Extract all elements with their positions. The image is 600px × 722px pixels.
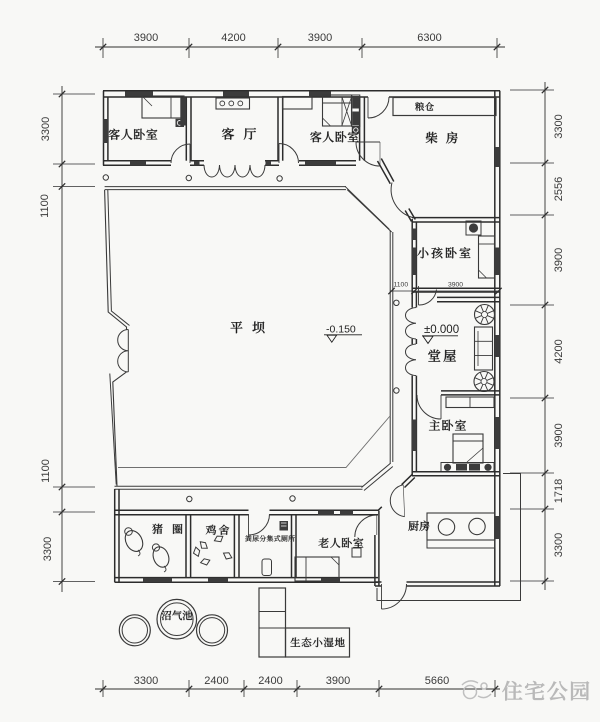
svg-text:3300: 3300 <box>134 675 158 687</box>
svg-text:3300: 3300 <box>553 533 565 557</box>
svg-text:2400: 2400 <box>258 675 282 687</box>
svg-text:3300: 3300 <box>553 114 565 138</box>
svg-text:3900: 3900 <box>553 248 565 272</box>
svg-text:1100: 1100 <box>393 282 408 289</box>
svg-text:4200: 4200 <box>221 32 245 44</box>
svg-text:3900: 3900 <box>553 423 565 447</box>
svg-text:±0.000: ±0.000 <box>424 324 459 336</box>
svg-text:1718: 1718 <box>553 479 565 503</box>
svg-text:1100: 1100 <box>39 194 51 218</box>
svg-text:-0.150: -0.150 <box>326 324 356 336</box>
svg-text:5660: 5660 <box>425 675 449 687</box>
svg-text:2556: 2556 <box>553 177 565 201</box>
svg-text:4200: 4200 <box>553 339 565 363</box>
svg-text:3900: 3900 <box>308 32 332 44</box>
svg-text:3900: 3900 <box>134 32 158 44</box>
svg-text:3900: 3900 <box>326 675 350 687</box>
svg-text:1100: 1100 <box>40 459 52 483</box>
svg-text:3300: 3300 <box>40 117 52 141</box>
svg-text:6300: 6300 <box>417 32 441 44</box>
svg-text:3900: 3900 <box>448 282 463 289</box>
svg-text:3300: 3300 <box>42 537 54 561</box>
svg-text:2400: 2400 <box>204 675 228 687</box>
